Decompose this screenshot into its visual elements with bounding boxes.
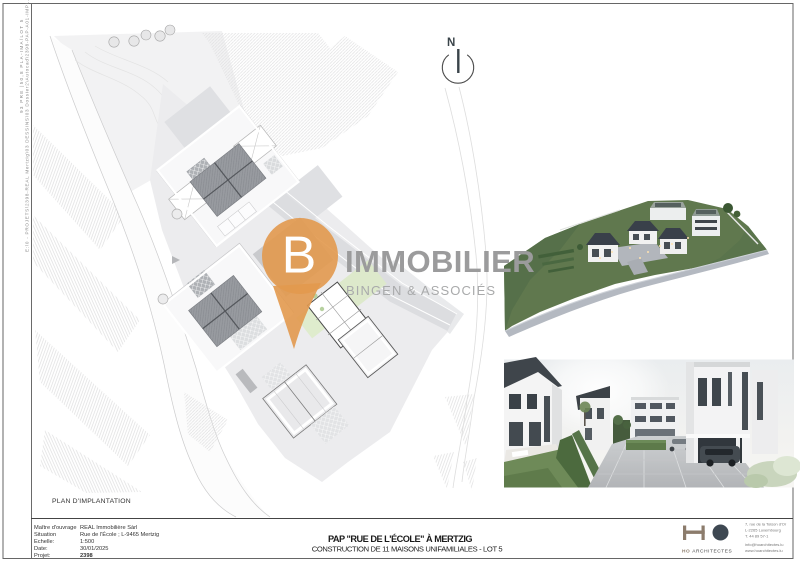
svg-text:HOARCHITECTES: HOARCHITECTES <box>682 549 732 555</box>
svg-text:7, rue de la Toison d'Or: 7, rue de la Toison d'Or <box>745 522 787 527</box>
svg-text:Projet:: Projet: <box>34 553 51 559</box>
svg-text:Date:: Date: <box>34 546 48 552</box>
svg-text:B: B <box>282 227 317 285</box>
svg-text:1:500: 1:500 <box>80 539 94 545</box>
svg-text:PLAN D'IMPLANTATION: PLAN D'IMPLANTATION <box>52 498 131 505</box>
svg-text:Echelle:: Echelle: <box>34 539 55 545</box>
svg-text:IMMOBILIER: IMMOBILIER <box>345 244 535 279</box>
svg-text:2398: 2398 <box>80 553 93 559</box>
svg-text:CONSTRUCTION DE 11 MAISONS UNI: CONSTRUCTION DE 11 MAISONS UNIFAMILIALES… <box>312 545 503 554</box>
svg-text:93 PRE |50,8 PLA-IMA/LOT 5: 93 PRE |50,8 PLA-IMA/LOT 5 <box>19 18 24 113</box>
svg-text:REAL Immobilière Sàrl: REAL Immobilière Sàrl <box>80 525 137 531</box>
svg-text:info@hoarchitectes.lu: info@hoarchitectes.lu <box>745 542 784 547</box>
svg-text:L-2265 Luxembourg: L-2265 Luxembourg <box>745 528 781 533</box>
svg-text:BINGEN & ASSOCIÉS: BINGEN & ASSOCIÉS <box>346 283 496 298</box>
svg-text:T. 44 89 57-1: T. 44 89 57-1 <box>745 534 769 539</box>
svg-text:Maître d'ouvrage: Maître d'ouvrage <box>34 525 77 531</box>
svg-text:30/01/2025: 30/01/2025 <box>80 546 108 552</box>
svg-text:PAP "RUE DE L'ÉCOLE" À MERTZIG: PAP "RUE DE L'ÉCOLE" À MERTZIG <box>328 533 472 544</box>
svg-text:N: N <box>447 37 455 49</box>
svg-text:Situation: Situation <box>34 532 56 538</box>
svg-text:Rue de l'École ; L-9465 Mertzi: Rue de l'École ; L-9465 Mertzig <box>80 531 159 538</box>
svg-text:E:\0 - PROJETS\2398-REAL Mertz: E:\0 - PROJETS\2398-REAL Mertzig\03 DESS… <box>25 0 30 252</box>
svg-text:www.hoarchitectes.lu: www.hoarchitectes.lu <box>745 548 783 553</box>
